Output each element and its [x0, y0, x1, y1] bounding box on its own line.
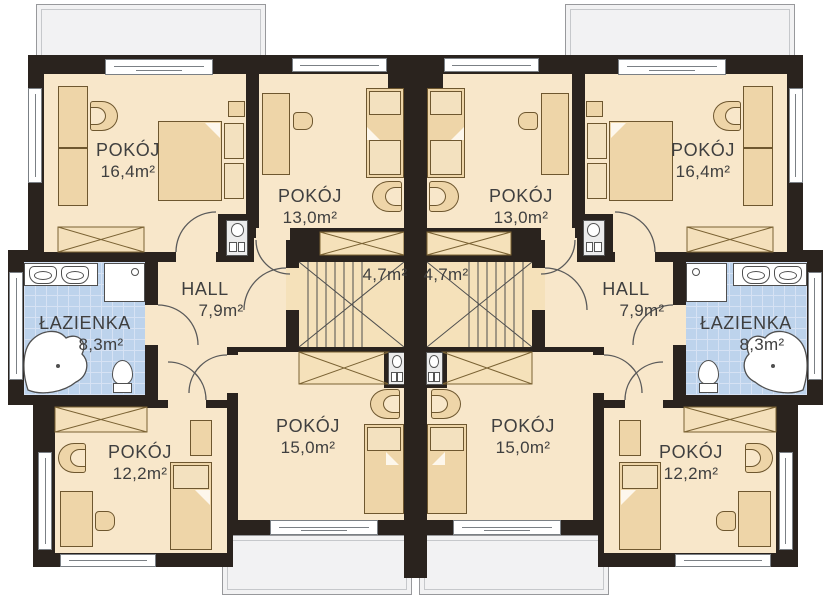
room-label-bedroom-150-left: POKÓJ 15,0m²: [246, 416, 370, 458]
sink-icon: [774, 266, 802, 284]
room-name: ŁAZIENKA: [686, 313, 806, 334]
room-label-hall-left: HALL 7,9m²: [145, 279, 265, 321]
room-name: POKÓJ: [638, 140, 768, 161]
chair: [713, 101, 741, 131]
room-area: 13,0m²: [458, 207, 584, 228]
blanket: [430, 140, 462, 175]
chair-seat: [431, 395, 448, 413]
room-area: 12,2m²: [76, 463, 204, 484]
room-area: 7,9m²: [582, 300, 702, 321]
room-label-bedroom-122-right: POKÓJ 12,2m²: [627, 442, 755, 484]
room-name: POKÓJ: [247, 186, 373, 207]
desk: [743, 86, 773, 148]
room-area: 16,4m²: [638, 161, 768, 182]
appliance-detail: [434, 372, 440, 381]
room-name: ŁAZIENKA: [25, 313, 145, 334]
room-area: 4,7m²: [406, 264, 486, 285]
room-label-hall-right: HALL 7,9m²: [566, 279, 686, 321]
blanket-fold: [611, 123, 626, 138]
room-area: 15,0m²: [461, 437, 585, 458]
appliance-drum: [587, 223, 601, 237]
desk: [541, 93, 569, 175]
room-name: POKÓJ: [627, 442, 755, 463]
unit-right: [0, 0, 831, 600]
pillow: [430, 427, 464, 451]
appliance-detail: [586, 242, 593, 252]
room-name: POKÓJ: [76, 442, 204, 463]
desk: [738, 491, 771, 547]
room-label-bedroom-164-right: POKÓJ 16,4m²: [638, 140, 768, 182]
room-label-bathroom-right: ŁAZIENKA 8,3m²: [686, 313, 806, 355]
chair-seat: [429, 187, 446, 206]
appliance-drum: [429, 355, 440, 368]
chair: [518, 112, 538, 130]
nightstand: [586, 101, 603, 117]
room-name: HALL: [566, 279, 686, 300]
chair-seat: [725, 107, 741, 125]
appliance-icon: [426, 352, 443, 385]
room-label-bedroom-130-right: POKÓJ 13,0m²: [458, 186, 584, 228]
room-label-bedroom-130-left: POKÓJ 13,0m²: [247, 186, 373, 228]
room-name: POKÓJ: [63, 140, 193, 161]
room-area: 12,2m²: [627, 463, 755, 484]
room-area: 8,3m²: [702, 334, 822, 355]
blanket-fold: [451, 127, 464, 140]
blanket-fold: [621, 490, 636, 505]
toilet-icon: [698, 360, 719, 385]
blanket-fold: [432, 452, 445, 465]
shower-drain-icon: [692, 268, 700, 276]
room-label-bedroom-122-left: POKÓJ 12,2m²: [76, 442, 204, 484]
room-area: 8,3m²: [41, 334, 161, 355]
room-label-bedroom-164-left: POKÓJ 16,4m²: [63, 140, 193, 182]
room-area: 16,4m²: [63, 161, 193, 182]
sink-icon: [742, 266, 770, 284]
floor-plan: POKÓJ 16,4m² POKÓJ 13,0m² HALL 7,9m² ŁAZ…: [0, 0, 831, 600]
room-name: POKÓJ: [458, 186, 584, 207]
room-label-bathroom-left: ŁAZIENKA 8,3m²: [25, 313, 145, 355]
room-area: 15,0m²: [246, 437, 370, 458]
room-area: 13,0m²: [247, 207, 373, 228]
room-name: HALL: [145, 279, 265, 300]
pillow: [587, 163, 607, 199]
appliance-detail: [428, 372, 434, 381]
room-label-bedroom-150-right: POKÓJ 15,0m²: [461, 416, 585, 458]
pillow: [430, 91, 462, 115]
toilet-tank: [699, 383, 718, 393]
appliance-detail: [594, 242, 601, 252]
room-area: 7,9m²: [161, 300, 281, 321]
pillow: [587, 123, 607, 159]
sink-basin: [779, 271, 797, 280]
room-name: POKÓJ: [246, 416, 370, 437]
sink-basin: [747, 271, 765, 280]
appliance-icon: [583, 220, 605, 256]
chair: [716, 511, 736, 531]
room-name: POKÓJ: [461, 416, 585, 437]
room-label-staircase-right: 4,7m²: [406, 264, 486, 285]
